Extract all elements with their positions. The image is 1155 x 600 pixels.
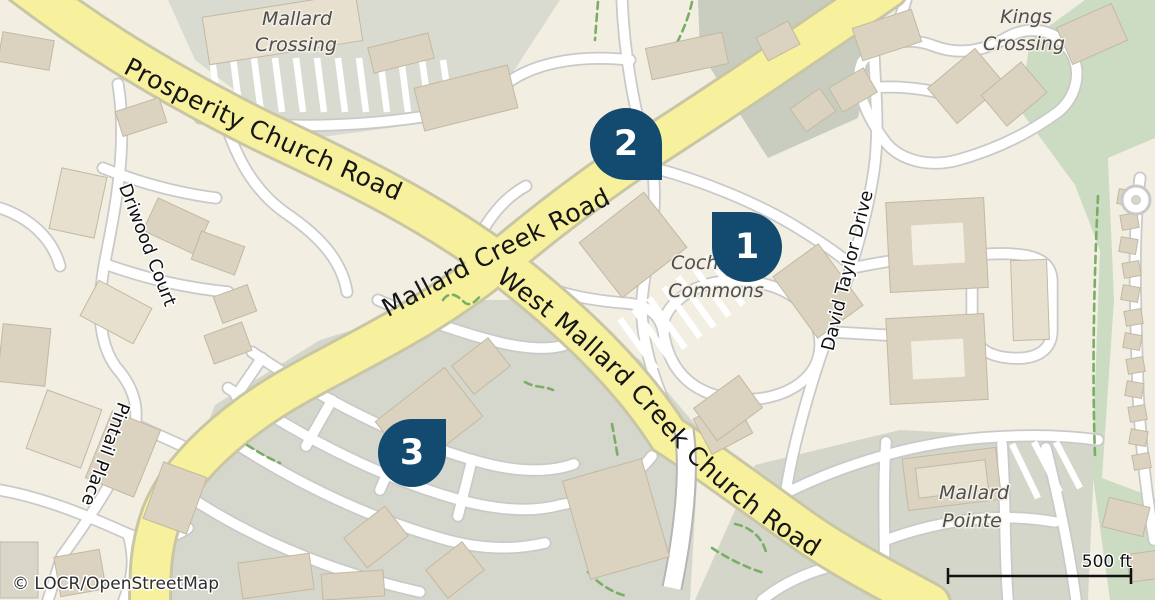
- place-label-kings-crossing-line2: Crossing: [983, 33, 1065, 55]
- place-label-mallard-crossing-line1: Mallard: [262, 8, 333, 30]
- place-label-mallard-pointe-line2: Pointe: [942, 510, 1002, 532]
- map-pin-2[interactable]: 2: [590, 108, 662, 180]
- pin-number: 1: [735, 230, 759, 265]
- map-pin-3[interactable]: 3: [378, 419, 446, 487]
- pin-number: 2: [614, 127, 638, 162]
- cul-de-sac: [1122, 186, 1150, 214]
- map-pin-1[interactable]: 1: [712, 212, 782, 282]
- attribution: © LOCR/OpenStreetMap: [12, 574, 219, 594]
- map-canvas: Prosperity Church Road Mallard Creek Roa…: [0, 0, 1155, 600]
- place-label-mallard-pointe-line1: Mallard: [939, 482, 1010, 504]
- place-label-cochran-commons-line2: Commons: [668, 280, 764, 302]
- pin-number: 3: [400, 436, 424, 471]
- place-label-mallard-crossing-line2: Crossing: [255, 34, 337, 56]
- map-viewport[interactable]: Prosperity Church Road Mallard Creek Roa…: [0, 0, 1155, 600]
- place-label-kings-crossing-line1: Kings: [1000, 6, 1052, 28]
- scale-bar-label: 500 ft: [1082, 552, 1133, 572]
